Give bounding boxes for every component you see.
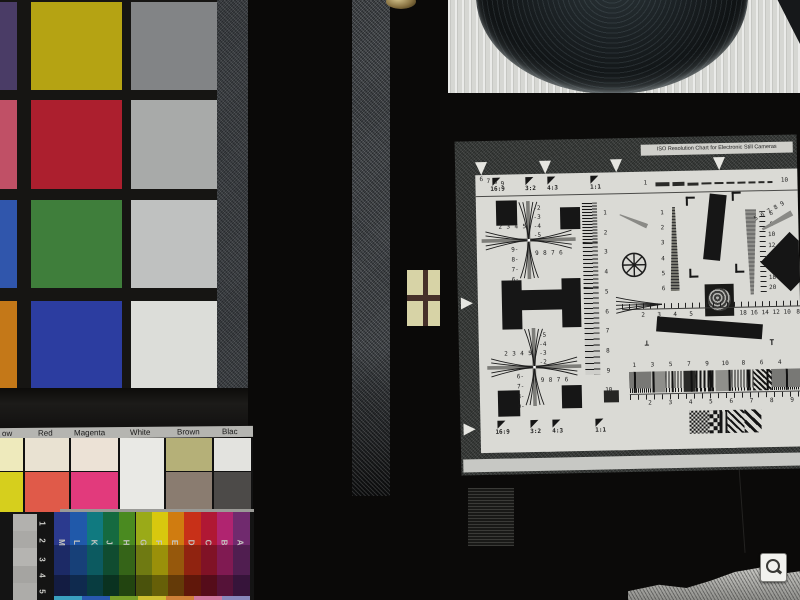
end-mark: T bbox=[769, 339, 774, 347]
beige-square bbox=[407, 301, 423, 326]
resolution-dash bbox=[748, 182, 755, 184]
grayscale-step bbox=[13, 514, 37, 531]
corner-bracket bbox=[732, 192, 741, 201]
kodak-edge-patch bbox=[110, 596, 138, 600]
color-patch bbox=[131, 2, 217, 90]
cross-number: 4 bbox=[514, 224, 518, 230]
pattern-tick bbox=[652, 371, 654, 392]
cross-number: 6 bbox=[565, 377, 569, 383]
i-beam-target bbox=[561, 278, 581, 327]
pattern-number: 6 bbox=[760, 360, 764, 366]
cross-number: 7- bbox=[517, 384, 524, 390]
diag-number: 8 bbox=[494, 180, 498, 186]
ruler-number: 2 bbox=[648, 401, 652, 407]
ruler-number: 16 bbox=[751, 310, 758, 316]
kodak-grayscale-column bbox=[13, 514, 37, 600]
aspect-flag bbox=[497, 421, 505, 429]
kodak-patch bbox=[184, 545, 200, 575]
ruler-number: 14 bbox=[762, 310, 769, 316]
pattern-tick bbox=[709, 370, 711, 391]
beige-square bbox=[407, 270, 423, 295]
kodak-letter: A bbox=[236, 540, 245, 546]
i-beam-target bbox=[520, 289, 564, 310]
wedge-scale-number: 5 bbox=[661, 271, 665, 277]
sample-patch bbox=[0, 438, 23, 471]
cross-number: 8- bbox=[517, 394, 524, 400]
kodak-patch bbox=[54, 545, 70, 575]
pattern-segment bbox=[744, 409, 761, 432]
sample-patch bbox=[25, 472, 69, 512]
sample-patch bbox=[71, 438, 118, 471]
bar-scale-number: 4 bbox=[604, 270, 608, 276]
color-patch bbox=[0, 100, 17, 189]
kodak-edge-patch bbox=[138, 596, 166, 600]
corner-bracket bbox=[686, 197, 695, 206]
pattern-tick bbox=[785, 369, 787, 390]
aspect-flag bbox=[595, 419, 603, 427]
resolution-chart: 11016:916:93:23:24:34:31:11:12345-2-3-4-… bbox=[475, 168, 800, 453]
resolution-dash bbox=[714, 182, 723, 185]
ruler-number: 4 bbox=[689, 400, 693, 406]
step-tab bbox=[604, 390, 619, 402]
kodak-patch bbox=[119, 545, 135, 575]
kodak-patch bbox=[168, 545, 184, 575]
pattern-segment bbox=[689, 410, 709, 433]
kodak-patch bbox=[217, 545, 233, 575]
taper-scale-number: 20 bbox=[769, 285, 776, 291]
kodak-number: 3 bbox=[38, 557, 47, 561]
kodak-edge-patch bbox=[194, 596, 222, 600]
kodak-patch bbox=[168, 575, 184, 596]
test-scene-photo: ISO Resolution Chart for Electronic Stil… bbox=[0, 0, 800, 600]
color-sample-strip bbox=[0, 438, 253, 512]
ruler-number: 6 bbox=[729, 399, 733, 405]
registration-triangle bbox=[610, 159, 622, 172]
grayscale-step bbox=[13, 566, 37, 583]
cross-number: -5 bbox=[534, 233, 541, 239]
resolution-chart-mount: ISO Resolution Chart for Electronic Stil… bbox=[455, 134, 800, 475]
cross-number: 7- bbox=[512, 267, 519, 273]
kodak-letter: H bbox=[122, 540, 131, 546]
kodak-patch bbox=[87, 545, 103, 575]
zone-plate-target bbox=[705, 284, 735, 317]
diag-number: 7 bbox=[766, 208, 772, 215]
pattern-segment bbox=[731, 369, 753, 390]
fabric-covered-divider bbox=[352, 0, 390, 496]
top-scale-end: 10 bbox=[781, 178, 788, 184]
hinge-pin bbox=[386, 0, 416, 9]
pattern-number: 10 bbox=[722, 361, 729, 367]
kodak-letter: J bbox=[105, 540, 114, 544]
wagon-wheel-target bbox=[621, 252, 648, 279]
sample-patch bbox=[71, 472, 118, 512]
cross-number: 9- bbox=[511, 247, 518, 253]
cross-number: -2 bbox=[533, 206, 540, 212]
kodak-letter: K bbox=[89, 540, 98, 546]
kodak-letter: M bbox=[57, 539, 66, 546]
panel-foam-edge bbox=[217, 0, 248, 418]
checker-flag-block bbox=[689, 409, 761, 434]
kodak-patch bbox=[103, 575, 119, 596]
barcode-label bbox=[468, 488, 514, 546]
resolution-dash bbox=[726, 182, 734, 184]
wedge-scale-number: 3 bbox=[661, 241, 665, 247]
kodak-edge-patch bbox=[222, 596, 250, 600]
pattern-tick bbox=[671, 371, 673, 392]
aspect-marker: 1:1 bbox=[595, 428, 606, 434]
resolution-dash bbox=[701, 182, 711, 185]
cross-number: -5 bbox=[539, 333, 546, 339]
aspect-marker: 16:9 bbox=[495, 430, 510, 436]
cross-number: 3 bbox=[506, 224, 510, 230]
pattern-tick bbox=[690, 371, 692, 392]
kodak-patch bbox=[70, 545, 86, 575]
color-patch bbox=[0, 200, 17, 288]
cross-number: 6- bbox=[517, 374, 524, 380]
sample-patch bbox=[166, 472, 212, 512]
sample-patch bbox=[0, 472, 23, 512]
kodak-number: 1 bbox=[38, 521, 47, 525]
kodak-letter: F bbox=[154, 540, 163, 545]
kodak-letter: B bbox=[219, 540, 228, 546]
color-patch bbox=[0, 301, 17, 388]
diag-number: 7 bbox=[487, 178, 491, 184]
bar-frequency-scale bbox=[582, 203, 601, 375]
color-patch bbox=[131, 200, 217, 288]
cross-number: 4 bbox=[520, 351, 524, 357]
pattern-number: 7 bbox=[687, 362, 691, 368]
kodak-patch bbox=[184, 575, 200, 596]
aspect-flag bbox=[547, 177, 555, 185]
kodak-color-control-strip: KODAK EKTA 12345MLKJHGFEDCBA bbox=[0, 512, 254, 600]
pattern-number: 1 bbox=[632, 363, 636, 369]
aspect-marker: 4:3 bbox=[547, 185, 558, 191]
kodak-edge-patch bbox=[82, 596, 110, 600]
vertical-wedge bbox=[669, 207, 680, 291]
kodak-number: 2 bbox=[38, 538, 47, 542]
color-name-label: Blac bbox=[222, 426, 238, 437]
pattern-segment bbox=[709, 410, 719, 433]
bar-scale-number: 3 bbox=[604, 250, 608, 256]
color-patch bbox=[31, 200, 122, 288]
aspect-flag bbox=[530, 420, 538, 428]
bar-segment bbox=[582, 203, 598, 243]
bar-scale-number: 5 bbox=[605, 289, 609, 295]
horizontal-fan bbox=[616, 293, 662, 316]
pattern-tick bbox=[766, 369, 768, 390]
kodak-letter: D bbox=[187, 540, 196, 546]
registration-triangle bbox=[713, 157, 725, 170]
diag-number: 6 bbox=[760, 212, 766, 219]
color-patch bbox=[131, 100, 217, 189]
pattern-number: 5 bbox=[669, 362, 673, 368]
aspect-marker: 3:2 bbox=[530, 429, 541, 435]
chart-title: ISO Resolution Chart for Electronic Stil… bbox=[641, 142, 793, 156]
cross-number: 9- bbox=[517, 404, 524, 410]
color-patch bbox=[0, 2, 17, 90]
bar-scale-number: 9 bbox=[607, 368, 611, 374]
wedge-scale-number: 1 bbox=[660, 210, 664, 216]
wedge-scale-number: 4 bbox=[661, 256, 665, 262]
cross-number: 5 bbox=[522, 224, 526, 230]
aspect-marker: 3:2 bbox=[525, 186, 536, 192]
pattern-segment bbox=[665, 371, 683, 392]
registration-triangle bbox=[475, 162, 487, 175]
diag-number: 9 bbox=[501, 181, 505, 187]
pattern-number: 4 bbox=[778, 360, 782, 366]
kodak-edge-patch bbox=[54, 596, 82, 600]
color-name-label: Brown bbox=[177, 426, 200, 437]
wedge-bar bbox=[619, 212, 649, 228]
bar-segment bbox=[585, 333, 601, 375]
diag-number: 5 bbox=[753, 215, 759, 222]
bar-scale-number: 1 bbox=[603, 210, 607, 216]
diag-number: 6 bbox=[479, 177, 483, 183]
resolution-dash bbox=[655, 182, 669, 186]
color-name-label: Magenta bbox=[74, 427, 105, 438]
grayscale-step bbox=[13, 531, 37, 548]
panel-bottom-edge bbox=[0, 388, 248, 428]
registration-triangle bbox=[539, 161, 551, 174]
kodak-letter: C bbox=[203, 540, 212, 546]
kodak-patch bbox=[152, 575, 168, 596]
aspect-flag bbox=[590, 176, 598, 184]
wedge-bar bbox=[761, 210, 794, 232]
cross-number: 2 bbox=[504, 352, 508, 358]
cross-number: 8 bbox=[549, 378, 553, 384]
slanted-bar bbox=[656, 316, 763, 339]
bar-scale-number: 6 bbox=[605, 309, 609, 315]
pattern-number: 8 bbox=[742, 361, 746, 367]
aspect-marker: 4:3 bbox=[552, 428, 563, 434]
ruler-number: 8 bbox=[796, 309, 800, 315]
pattern-number: 9 bbox=[705, 361, 709, 367]
pattern-segment bbox=[753, 369, 771, 390]
diag-number: 9 bbox=[780, 201, 786, 208]
cross-number: 8 bbox=[543, 251, 547, 257]
sample-patch bbox=[166, 438, 212, 471]
grayscale-step bbox=[13, 583, 37, 600]
diag-number: 8 bbox=[773, 205, 779, 212]
kodak-patch bbox=[136, 575, 152, 596]
top-scale-start: 1 bbox=[644, 181, 648, 187]
end-mark: ⊥ bbox=[644, 340, 649, 348]
zoom-cursor[interactable] bbox=[760, 553, 787, 582]
cross-number: 2 bbox=[498, 225, 502, 231]
bar-scale-number: 7 bbox=[606, 329, 610, 335]
aspect-marker: 1:1 bbox=[590, 185, 601, 191]
sample-patch bbox=[214, 438, 251, 471]
slanted-bar bbox=[703, 193, 727, 260]
kodak-patch bbox=[87, 575, 103, 596]
cross-number: -3 bbox=[533, 215, 540, 221]
ruler-number: 9 bbox=[790, 398, 794, 404]
color-name-label: White bbox=[130, 427, 151, 438]
ruler-number: 12 bbox=[773, 310, 780, 316]
kodak-letter: L bbox=[72, 540, 81, 545]
kodak-patch bbox=[233, 545, 249, 575]
colorchecker-panel bbox=[0, 0, 248, 428]
kodak-letter: G bbox=[138, 539, 147, 545]
kodak-edge-patch bbox=[166, 596, 194, 600]
kodak-patch bbox=[152, 545, 168, 575]
resolution-dash bbox=[672, 182, 684, 186]
bar-scale-number: 8 bbox=[606, 348, 610, 354]
ruler-number: 10 bbox=[784, 310, 791, 316]
cross-number: -2 bbox=[540, 360, 547, 366]
kodak-patch bbox=[54, 575, 70, 596]
kodak-patch bbox=[103, 545, 119, 575]
registration-triangle bbox=[461, 297, 473, 309]
hyperbolic-wedge-cross bbox=[478, 321, 590, 413]
resolution-dash bbox=[758, 181, 764, 183]
cross-number: 5 bbox=[528, 351, 532, 357]
kodak-number: 5 bbox=[38, 589, 47, 593]
resolution-dash bbox=[687, 182, 698, 185]
ruler-number: 5 bbox=[689, 312, 693, 318]
sample-patch bbox=[25, 438, 69, 471]
sample-patch bbox=[120, 438, 164, 512]
cross-number: 6 bbox=[559, 250, 563, 256]
pattern-tick bbox=[633, 372, 635, 393]
magnifier-handle-icon bbox=[776, 568, 782, 574]
aspect-flag bbox=[552, 419, 560, 427]
kodak-number: 4 bbox=[38, 573, 47, 577]
grayscale-step bbox=[13, 548, 37, 565]
cross-number: 9 bbox=[541, 378, 545, 384]
kodak-patch bbox=[233, 575, 249, 596]
pattern-segment bbox=[695, 370, 715, 391]
bar-segment bbox=[583, 243, 599, 288]
kodak-patch bbox=[217, 575, 233, 596]
kodak-letter: E bbox=[170, 540, 179, 545]
sample-patch bbox=[214, 472, 251, 512]
pattern-tick bbox=[747, 369, 749, 390]
wedge-scale-number: 6 bbox=[662, 286, 666, 292]
cross-number: 9 bbox=[535, 251, 539, 257]
bar-scale-number: 2 bbox=[604, 230, 608, 236]
wedge-scale-number: 2 bbox=[661, 225, 665, 231]
hyperbolic-wedge-cross bbox=[475, 194, 584, 286]
color-patch bbox=[31, 2, 122, 90]
pattern-segment bbox=[727, 410, 744, 433]
cross-number: 7 bbox=[551, 251, 555, 257]
pattern-number: 3 bbox=[651, 362, 655, 368]
ruler-number: 18 bbox=[740, 311, 747, 317]
kodak-patch bbox=[119, 575, 135, 596]
aspect-flag bbox=[525, 177, 533, 185]
dense-line-strip bbox=[629, 368, 800, 393]
kodak-patch bbox=[136, 545, 152, 575]
pattern-tick bbox=[728, 370, 730, 391]
cross-number: -3 bbox=[539, 351, 546, 357]
corner-bracket bbox=[689, 269, 698, 278]
color-patch bbox=[131, 301, 217, 388]
corner-bracket bbox=[735, 264, 744, 273]
ruler-number: 8 bbox=[770, 398, 774, 404]
cross-number: -4 bbox=[534, 224, 541, 230]
kodak-patch bbox=[70, 575, 86, 596]
chart-bottom-edge bbox=[463, 452, 800, 472]
diagonal-wedge-left bbox=[612, 200, 655, 241]
ruler-number: 7 bbox=[750, 398, 754, 404]
color-patch bbox=[31, 301, 122, 388]
registration-triangle bbox=[463, 423, 475, 435]
cross-number: 8- bbox=[511, 257, 518, 263]
cross-number: 7 bbox=[557, 377, 561, 383]
ruler-number: 5 bbox=[709, 399, 713, 405]
aspect-marker: 16:9 bbox=[490, 187, 505, 193]
color-patch bbox=[31, 100, 122, 189]
ruler-number: 3 bbox=[668, 400, 672, 406]
cross-number: 3 bbox=[512, 351, 516, 357]
alignment-cross-marker bbox=[407, 270, 444, 326]
kodak-patch bbox=[201, 545, 217, 575]
cross-number: -4 bbox=[539, 342, 546, 348]
bar-segment bbox=[584, 288, 600, 333]
resolution-dash bbox=[767, 181, 772, 183]
resolution-dash bbox=[737, 182, 745, 184]
kodak-patch bbox=[201, 575, 217, 596]
